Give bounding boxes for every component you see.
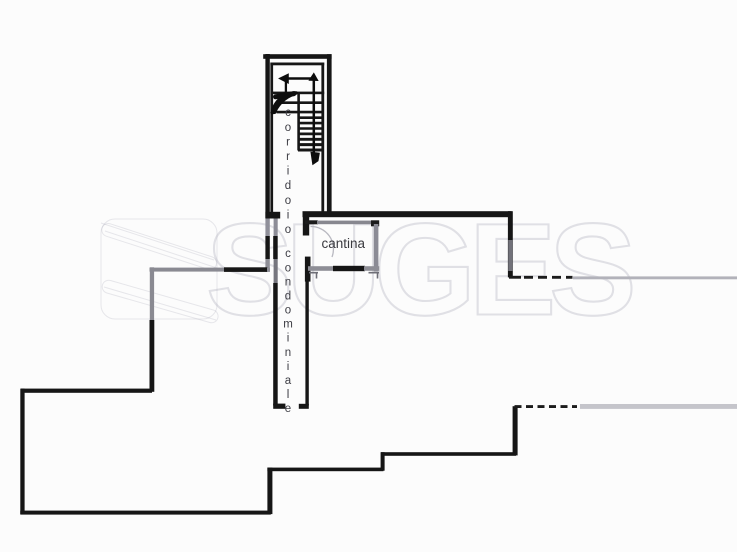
svg-text:d: d (285, 291, 291, 303)
svg-text:i: i (287, 209, 290, 221)
svg-text:n: n (285, 276, 291, 288)
svg-text:r: r (286, 151, 290, 163)
svg-text:o: o (285, 224, 291, 236)
svg-text:o: o (285, 195, 291, 207)
svg-text:m: m (283, 319, 293, 331)
svg-text:n: n (285, 347, 291, 359)
svg-text:a: a (285, 375, 292, 387)
svg-text:r: r (286, 136, 290, 148)
svg-text:i: i (287, 333, 290, 345)
svg-text:d: d (285, 180, 291, 192)
svg-text:o: o (285, 122, 291, 134)
svg-text:c: c (285, 107, 291, 119)
svg-text:i: i (287, 361, 290, 373)
svg-text:o: o (285, 262, 291, 274)
svg-text:e: e (285, 403, 291, 415)
svg-text:l: l (287, 389, 290, 401)
svg-text:i: i (287, 166, 290, 178)
svg-text:cantina: cantina (322, 236, 366, 251)
svg-text:c: c (285, 248, 291, 260)
svg-text:o: o (285, 305, 291, 317)
